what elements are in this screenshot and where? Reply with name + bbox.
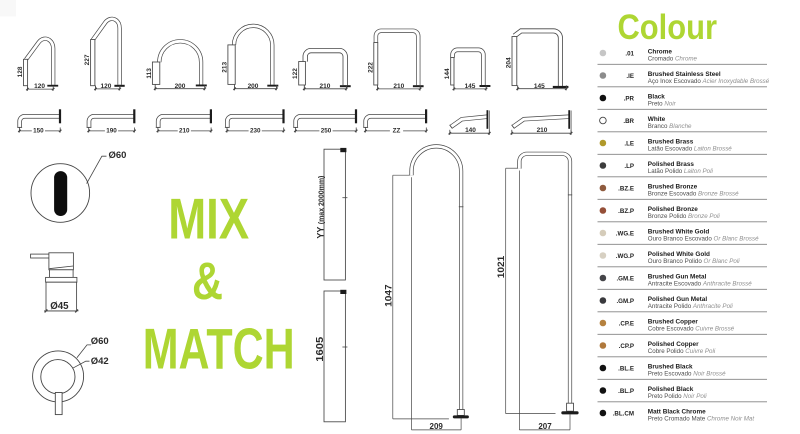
- svg-text:Polished Copper: Polished Copper: [648, 341, 699, 348]
- svg-text:128: 128: [17, 66, 24, 77]
- svg-text:.BZ.E: .BZ.E: [618, 185, 634, 192]
- svg-text:Brushed Copper: Brushed Copper: [648, 318, 699, 325]
- svg-text:145: 145: [534, 83, 545, 90]
- svg-text:222: 222: [367, 62, 374, 73]
- svg-text:Polished Bronze: Polished Bronze: [648, 206, 699, 213]
- svg-text:Bronze Polido Bronze Poli: Bronze Polido Bronze Poli: [648, 213, 721, 220]
- svg-text:Polished Gun Metal: Polished Gun Metal: [648, 296, 708, 303]
- svg-text:.GM.P: .GM.P: [616, 298, 634, 305]
- svg-text:204: 204: [506, 57, 513, 68]
- svg-text:Latão Polido Laiton Poli: Latão Polido Laiton Poli: [648, 168, 714, 175]
- svg-text:Ø45: Ø45: [50, 301, 69, 312]
- svg-text:Ouro Branco Polido Or Blanc Po: Ouro Branco Polido Or Blanc Poli: [648, 258, 740, 265]
- svg-text:Aço Inox Escovado Acier Inoxyd: Aço Inox Escovado Acier Inoxydable Bross…: [648, 78, 770, 85]
- svg-text:140: 140: [465, 127, 476, 134]
- svg-text:Ø42: Ø42: [91, 356, 109, 367]
- svg-text:Polished Brass: Polished Brass: [648, 161, 695, 168]
- svg-text:210: 210: [537, 127, 548, 134]
- svg-text:.CP.P: .CP.P: [619, 343, 634, 350]
- svg-text:Bronze Escovado Bronze Brossé: Bronze Escovado Bronze Brossé: [648, 191, 739, 198]
- svg-text:MATCH: MATCH: [143, 317, 295, 381]
- svg-text:144: 144: [444, 68, 451, 79]
- svg-text:Cromado Chrome: Cromado Chrome: [648, 56, 698, 63]
- svg-text:Cobre Escovado Cuivre Brossé: Cobre Escovado Cuivre Brossé: [648, 326, 735, 333]
- svg-text:227: 227: [84, 54, 91, 65]
- svg-text:Cobre Polido Cuivre Poli: Cobre Polido Cuivre Poli: [648, 348, 716, 355]
- svg-text:.BL.P: .BL.P: [618, 388, 634, 395]
- svg-text:ZZ: ZZ: [393, 128, 401, 135]
- svg-text:Brushed White Gold: Brushed White Gold: [648, 228, 710, 235]
- svg-text:Colour: Colour: [618, 7, 718, 47]
- svg-text:113: 113: [146, 68, 153, 79]
- svg-text:.CP.E: .CP.E: [619, 320, 634, 327]
- svg-text:1047: 1047: [383, 284, 393, 307]
- svg-text:&: &: [192, 252, 223, 311]
- svg-text:.WG.E: .WG.E: [616, 230, 634, 237]
- svg-text:Brushed Brass: Brushed Brass: [648, 138, 694, 145]
- svg-text:.LP: .LP: [624, 163, 634, 170]
- svg-text:Brushed Stainless Steel: Brushed Stainless Steel: [648, 71, 721, 78]
- svg-text:200: 200: [248, 83, 259, 90]
- svg-text:Chrome: Chrome: [648, 48, 673, 55]
- svg-text:Preto Escovado Noir Brossé: Preto Escovado Noir Brossé: [648, 371, 726, 378]
- svg-text:Polished Black: Polished Black: [648, 386, 694, 393]
- svg-text:Matt Black Chrome: Matt Black Chrome: [648, 408, 706, 415]
- svg-text:122: 122: [292, 68, 299, 79]
- svg-text:1605: 1605: [314, 337, 326, 362]
- svg-text:Brushed Black: Brushed Black: [648, 363, 693, 370]
- svg-text:.BR: .BR: [623, 118, 634, 125]
- svg-text:210: 210: [319, 83, 330, 90]
- svg-text:Preto Polido Noir Poli: Preto Polido Noir Poli: [648, 393, 707, 400]
- svg-text:Brushed Bronze: Brushed Bronze: [648, 183, 698, 190]
- svg-text:.BZ.P: .BZ.P: [618, 208, 634, 215]
- svg-text:.IE: .IE: [626, 73, 634, 80]
- svg-text:.01: .01: [625, 50, 634, 57]
- svg-text:.LE: .LE: [624, 140, 634, 147]
- svg-text:MIX: MIX: [168, 187, 249, 251]
- svg-text:.GM.E: .GM.E: [616, 275, 634, 282]
- svg-text:Preto Cromado Mate Chrome Noir: Preto Cromado Mate Chrome Noir Mat: [648, 416, 755, 423]
- svg-text:Ouro Branco Escovado Or Blanc: Ouro Branco Escovado Or Blanc Brossé: [648, 236, 759, 243]
- svg-text:.WG.P: .WG.P: [616, 253, 634, 260]
- svg-text:210: 210: [393, 83, 404, 90]
- svg-text:1021: 1021: [496, 256, 506, 279]
- svg-text:Polished White Gold: Polished White Gold: [648, 251, 710, 258]
- svg-text:Ø60: Ø60: [91, 336, 109, 347]
- svg-text:White: White: [648, 116, 666, 123]
- svg-text:.BL.E: .BL.E: [618, 365, 634, 372]
- svg-text:Preto Noir: Preto Noir: [648, 101, 677, 108]
- svg-text:.PR: .PR: [624, 95, 635, 102]
- svg-text:145: 145: [465, 83, 476, 90]
- svg-text:.BL.CM: .BL.CM: [613, 410, 634, 417]
- svg-text:Ø60: Ø60: [109, 150, 127, 161]
- svg-text:120: 120: [100, 83, 111, 90]
- svg-text:210: 210: [179, 128, 190, 135]
- svg-text:250: 250: [321, 128, 332, 135]
- svg-text:209: 209: [430, 422, 444, 431]
- svg-text:213: 213: [221, 61, 228, 72]
- svg-text:200: 200: [175, 83, 186, 90]
- svg-text:Black: Black: [648, 93, 665, 100]
- svg-text:207: 207: [538, 422, 552, 431]
- svg-text:150: 150: [33, 128, 44, 135]
- svg-text:120: 120: [34, 83, 45, 90]
- svg-text:190: 190: [106, 128, 117, 135]
- svg-text:230: 230: [250, 128, 261, 135]
- svg-text:Antracite Escovado Anthracite: Antracite Escovado Anthracite Brossé: [648, 281, 752, 288]
- svg-text:Branco Blanche: Branco Blanche: [648, 123, 692, 130]
- svg-text:Brushed Gun Metal: Brushed Gun Metal: [648, 273, 707, 280]
- svg-text:Latão Escovado Laiton Brossé: Latão Escovado Laiton Brossé: [648, 146, 733, 153]
- svg-text:Antracite Polido Anthracite Po: Antracite Polido Anthracite Poli: [648, 303, 734, 310]
